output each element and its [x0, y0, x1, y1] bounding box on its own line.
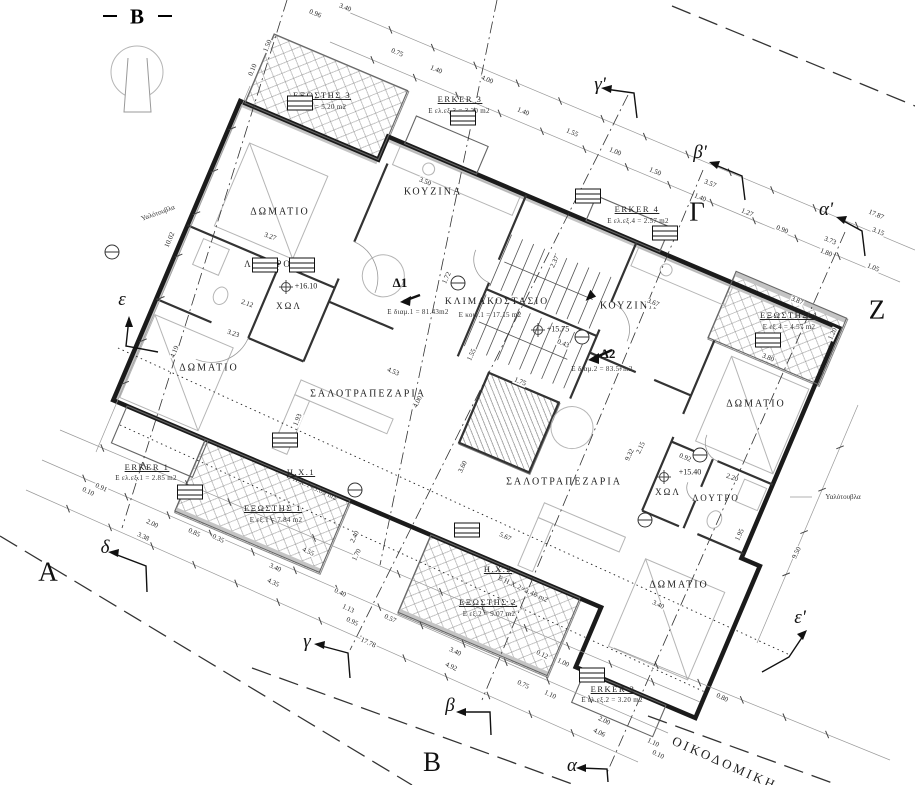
- room-bath-2: ΛΟΥΤΡΟ: [692, 493, 740, 503]
- level-stair: +15.75: [547, 325, 570, 334]
- fixture-tag: [575, 330, 590, 345]
- room-staircase: ΚΛΙΜΑΚΟΣΤΑΣΙΟ: [445, 297, 549, 307]
- fixture-tag: [105, 245, 120, 260]
- erker-2-area: Ε ελ.εξ.2 = 3.20 m2: [581, 696, 643, 704]
- balcony-4-label: ΕΞΩΣΤΗΣ 4: [760, 310, 818, 320]
- room-bedroom-nw: ΔΩΜΑΤΙΟ: [250, 207, 310, 218]
- balcony-1-label: ΕΞΩΣΤΗΣ 1: [244, 503, 302, 513]
- staircase-area: Ε κοιν.1 = 17.15 m2: [459, 311, 522, 319]
- apartment-2-area: Ε διαμ.2 = 83.57m2: [571, 365, 632, 373]
- north-label: Β: [130, 5, 144, 30]
- room-living-1: ΣΑΛΟΤΡΑΠΕΖΑΡΙΑ: [310, 389, 426, 400]
- room-kitchen-1: ΚΟΥΖΙΝΑ: [404, 187, 462, 198]
- apartment-2-marker: Δ2: [601, 346, 616, 362]
- window-schedule-tag: [579, 668, 605, 683]
- section-beta-prime: β': [693, 142, 707, 164]
- room-bedroom-w: ΔΩΜΑΤΙΟ: [179, 363, 239, 374]
- section-epsilon: ε: [118, 289, 126, 311]
- window-schedule-tag: [289, 258, 315, 273]
- window-schedule-tag: [287, 96, 313, 111]
- erker-2-label: ERKER 2: [591, 684, 636, 694]
- erker-4-label: ERKER 4: [615, 204, 660, 214]
- window-schedule-tag: [755, 333, 781, 348]
- level-hall1: +16.10: [295, 282, 318, 291]
- north-arrow-icon: [103, 16, 172, 112]
- erker-3-label: ERKER 3: [438, 94, 483, 104]
- balcony-2-label: ΕΞΩΣΤΗΣ 2: [459, 597, 517, 607]
- window-schedule-tag: [652, 226, 678, 241]
- glass-blocks-right-note: Υαλότουβλα: [825, 493, 860, 501]
- floor-plan-drawing: Β Α Β Γ Ζ ε δ γ β α γ' β' α' ε' ΔΩΜΑΤΙΟ …: [0, 0, 915, 785]
- window-schedule-tag: [272, 433, 298, 448]
- room-hall-1: ΧΩΛ: [276, 301, 302, 311]
- balcony-1-area: Ε εξ.1 = 7.84 m2: [250, 516, 303, 524]
- section-epsilon-prime: ε': [794, 607, 806, 629]
- fixture-tag: [348, 483, 363, 498]
- fixture-tag: [693, 448, 708, 463]
- room-bedroom-e: ΔΩΜΑΤΙΟ: [726, 399, 786, 410]
- erker-1-label: ERKER 1: [125, 462, 170, 472]
- grid-letter-alpha: Α: [38, 557, 58, 588]
- apartment-1-marker: Δ1: [393, 275, 408, 291]
- window-schedule-tag: [450, 111, 476, 126]
- window-schedule-tag: [177, 485, 203, 500]
- window-schedule-tag: [252, 258, 278, 273]
- room-hall-2: ΧΩΛ: [655, 487, 681, 497]
- window-schedule-tag: [454, 523, 480, 538]
- section-gamma-prime: γ': [594, 74, 606, 96]
- apartment-1-area: Ε διαμ.1 = 81.43m2: [387, 308, 448, 316]
- erker-4-area: Ε ελ.εξ.4 = 2.57 m2: [607, 217, 669, 225]
- room-bedroom-se: ΔΩΜΑΤΙΟ: [649, 580, 709, 591]
- section-alpha-prime: α': [819, 199, 833, 221]
- fixture-tag: [638, 513, 653, 528]
- section-alpha: α: [567, 755, 577, 777]
- grid-letter-beta: Β: [423, 747, 441, 778]
- section-gamma: γ: [303, 631, 311, 653]
- window-schedule-tag: [575, 189, 601, 204]
- balcony-2-area: Ε εξ.2 = 9.07 m2: [463, 610, 516, 618]
- hx-2-label: Η.Χ.2: [484, 564, 512, 574]
- section-delta: δ: [101, 537, 110, 559]
- section-beta: β: [445, 695, 454, 717]
- level-hall2: +15.40: [679, 468, 702, 477]
- fixture-tag: [451, 276, 466, 291]
- room-living-2: ΣΑΛΟΤΡΑΠΕΖΑΡΙΑ: [506, 477, 622, 488]
- grid-letter-z: Ζ: [869, 295, 886, 326]
- erker-1-area: Ε ελ.εξ.1 = 2.85 m2: [115, 474, 177, 482]
- balcony-4-area: Ε εξ.4 = 4.57 m2: [763, 323, 816, 331]
